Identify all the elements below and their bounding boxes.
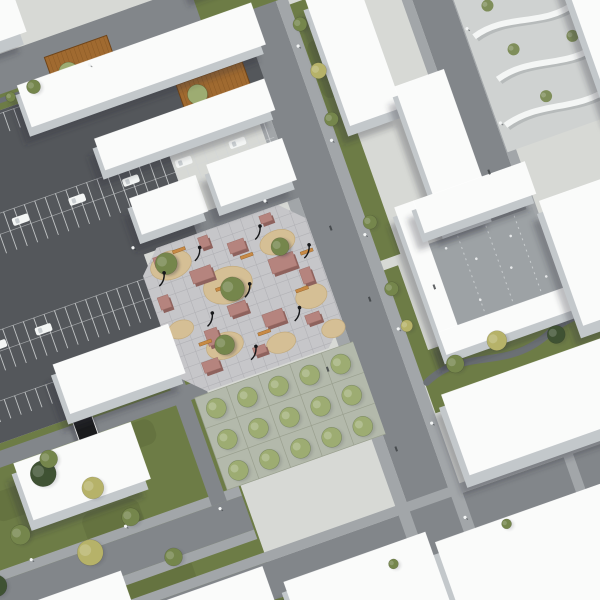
site-plan-render (0, 0, 600, 600)
site-plan-svg (0, 0, 600, 600)
